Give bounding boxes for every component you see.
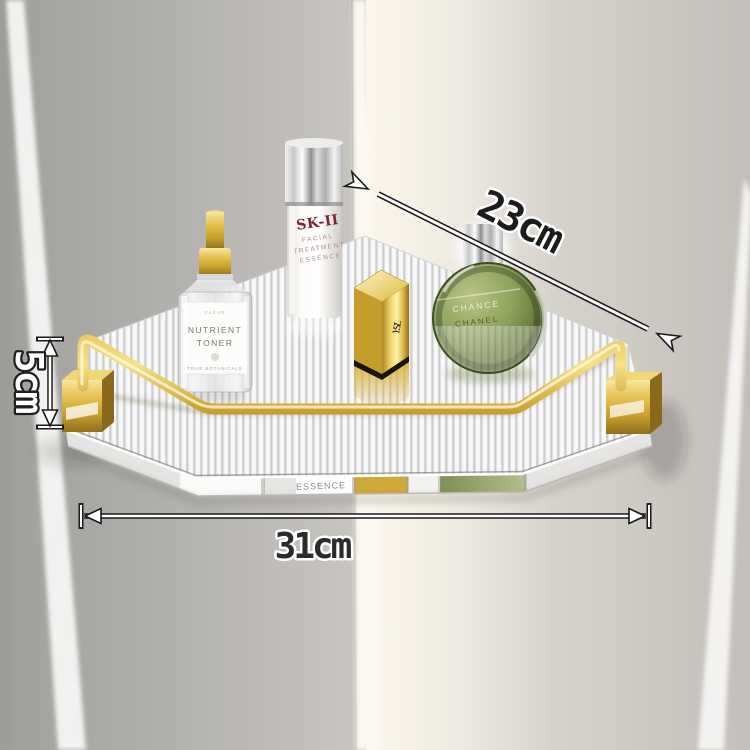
glass-highlight-left <box>181 296 187 388</box>
dropper-stem <box>206 212 224 250</box>
lipstick: YSL <box>354 270 409 412</box>
cube-side-face <box>650 372 662 434</box>
essence-bottle-reflection <box>286 316 342 336</box>
dimension-width-label: 31cm <box>275 526 352 567</box>
essence-bottle-cap <box>285 142 343 206</box>
body-highlight <box>289 206 295 314</box>
scene-canvas: ESSENCE SK-II FACIAL TREATMENT ESSENCE <box>0 0 750 750</box>
right-mount-cube <box>606 372 662 434</box>
dropper-collar <box>199 248 231 276</box>
product-photo-corner-shelf: ESSENCE SK-II FACIAL TREATMENT ESSENCE <box>0 0 750 750</box>
toner-name-2: TONER <box>197 338 234 348</box>
essence-bottle-cap-top <box>285 138 343 148</box>
lipstick-left-face <box>354 288 382 374</box>
essence-bottle: SK-II FACIAL TREATMENT ESSENCE <box>285 138 347 336</box>
toner-label-dot <box>211 353 219 361</box>
toner-name-1: NUTRIENT <box>188 325 242 335</box>
dimension-height-label: 5cm <box>7 350 51 414</box>
glass-highlight-right <box>244 296 249 388</box>
cap-edge <box>285 202 343 206</box>
toner-label-top: CLEAR <box>204 310 225 315</box>
edge-reflection-text: ESSENCE <box>296 480 346 492</box>
toner-label-bottom: TRUE BOTANICALS <box>187 366 242 371</box>
cube-side-face <box>102 370 114 432</box>
